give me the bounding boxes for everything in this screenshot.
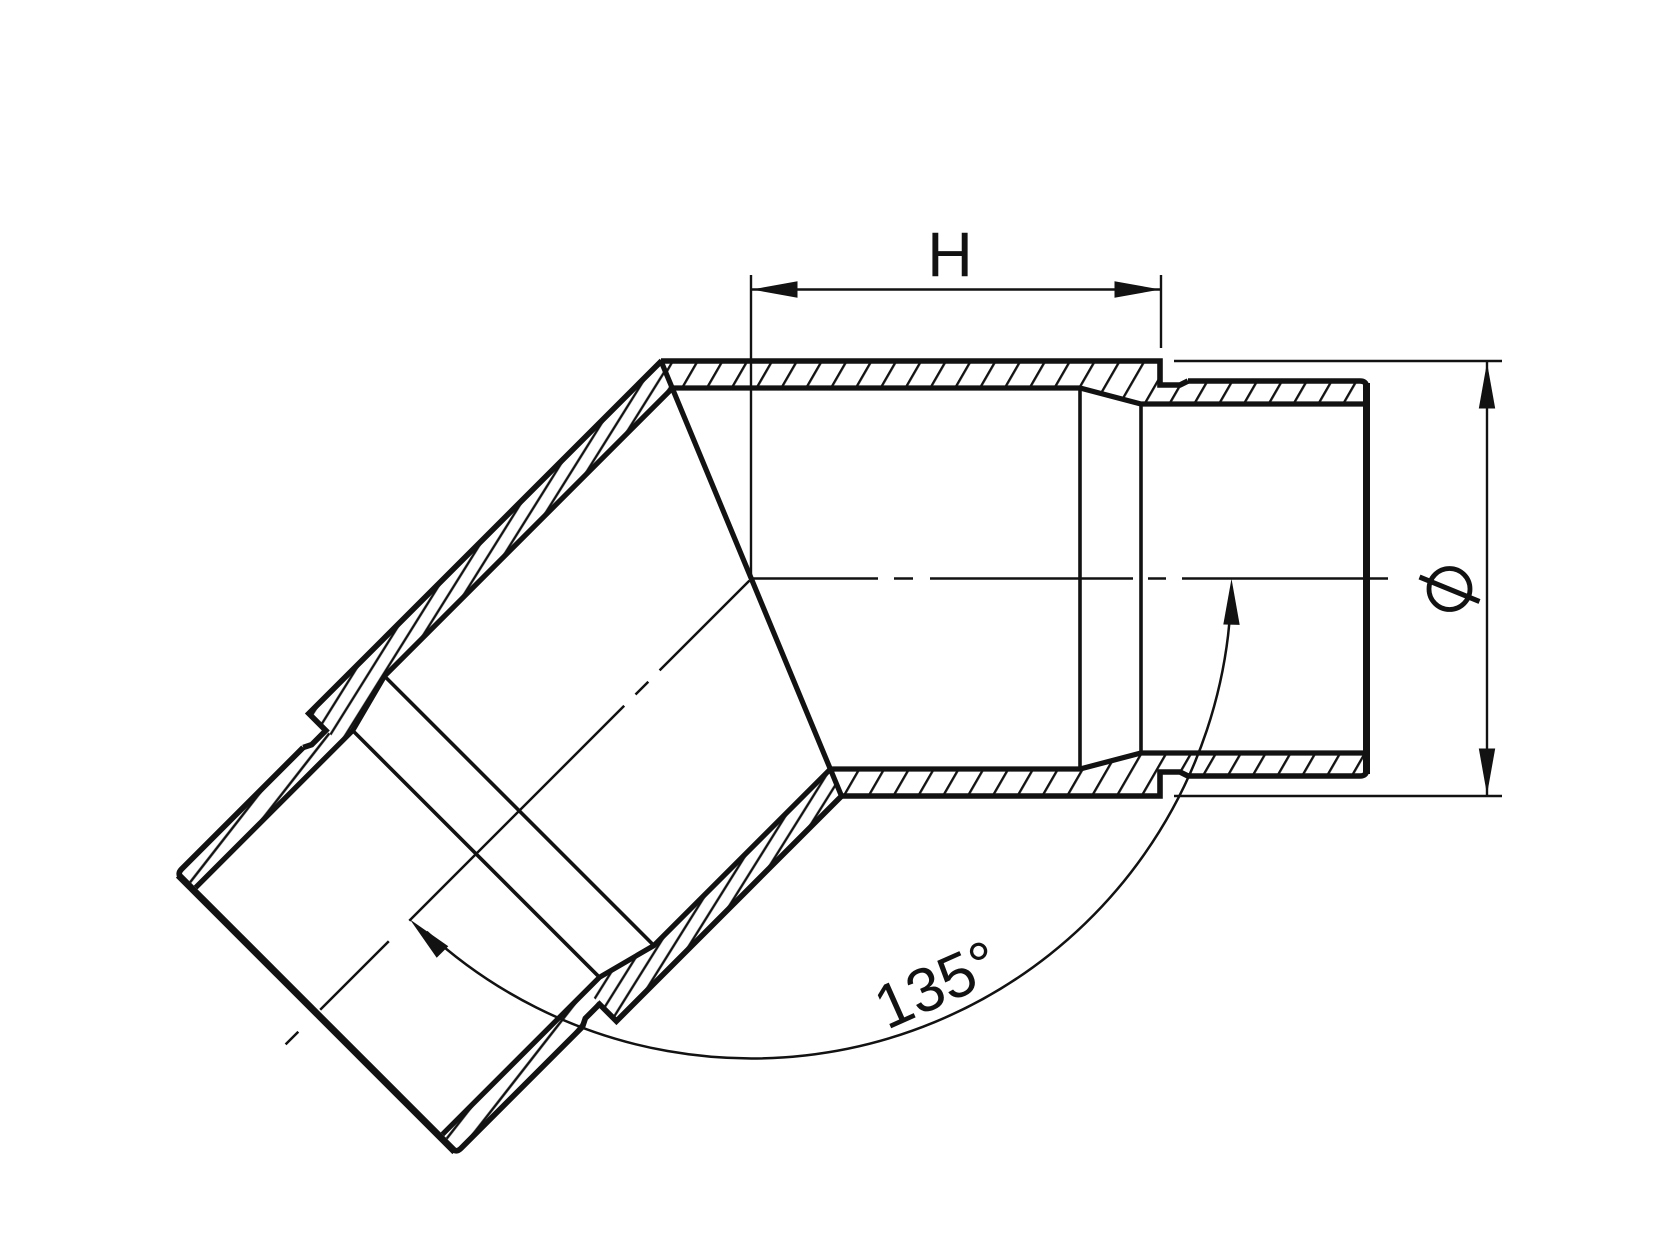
svg-text:H: H — [927, 220, 973, 290]
